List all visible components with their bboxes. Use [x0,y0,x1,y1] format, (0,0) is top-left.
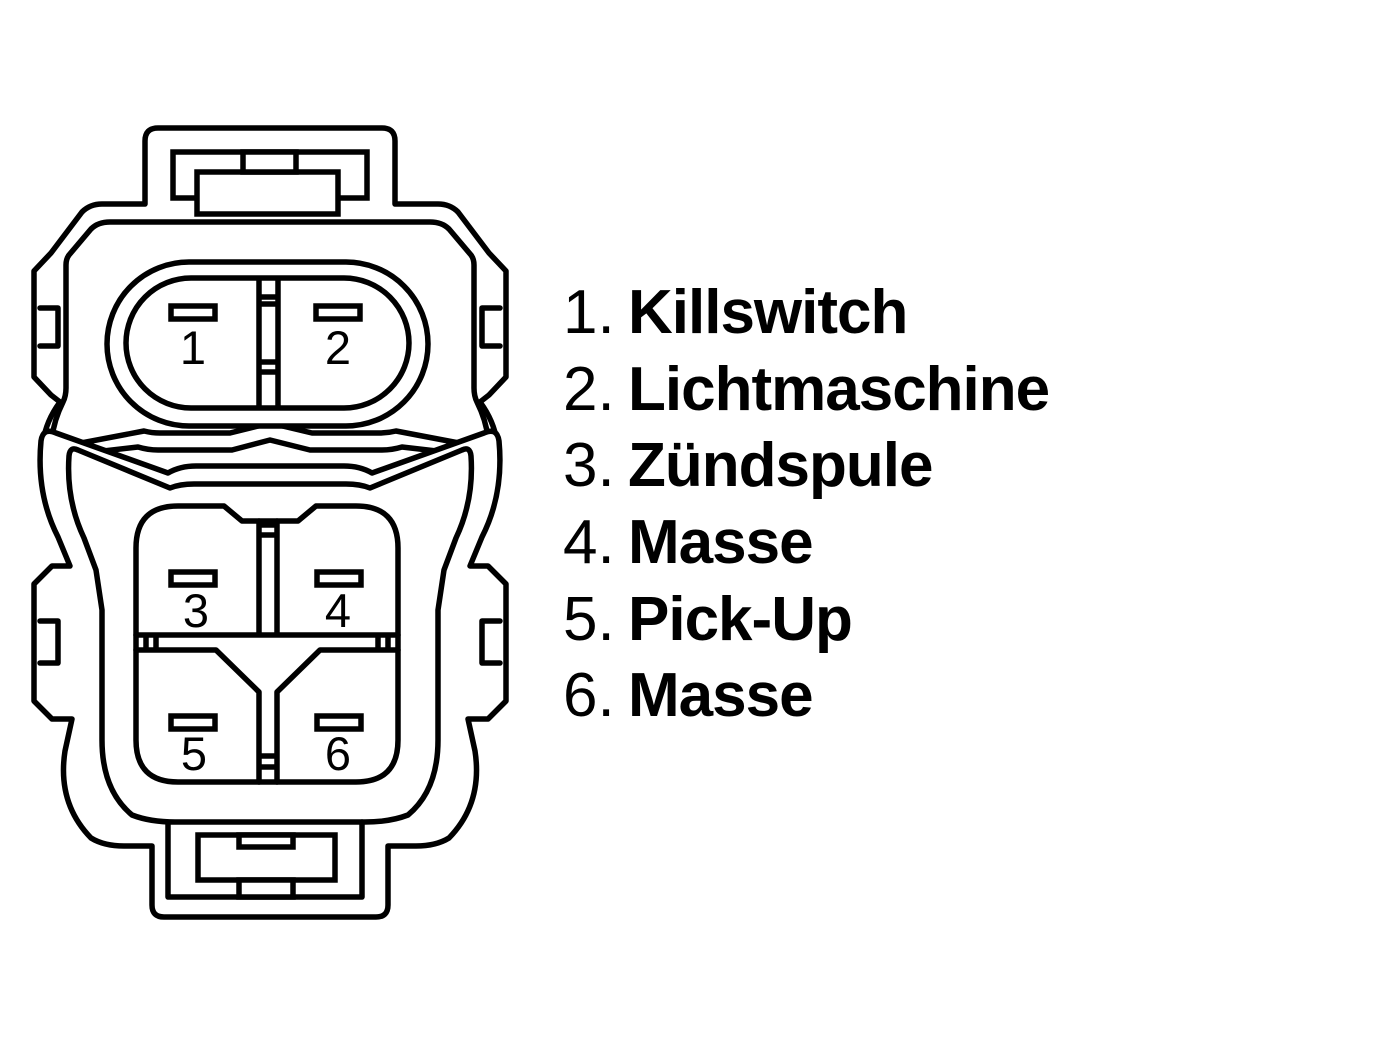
legend-label: Masse [628,661,813,730]
legend-item-2: 2.Lichtmaschine [563,352,1049,428]
pin-2-slot [316,306,360,319]
latch-notch-top [239,835,293,847]
pin-1-number: 1 [180,321,206,374]
pin-6-number: 6 [325,727,351,780]
legend-item-4: 4.Masse [563,505,813,581]
legend-item-1: 1.Killswitch [563,275,907,351]
legend-label: Masse [628,508,813,577]
legend-number: 4. [563,505,628,581]
pin-2-number: 2 [325,321,351,374]
legend-item-6: 6.Masse [563,658,813,734]
top-connector: 1 2 [34,128,506,460]
legend-number: 3. [563,428,628,504]
pin-5-number: 5 [181,727,207,780]
legend-number: 2. [563,352,628,428]
legend-label: Lichtmaschine [628,355,1049,424]
legend-label: Pick-Up [628,585,852,654]
pin-4-number: 4 [325,584,351,637]
latch-notch-bottom [239,880,293,897]
pin-1-slot [171,306,215,319]
legend-label: Zündspule [628,431,932,500]
legend-number: 1. [563,275,628,351]
legend-number: 5. [563,582,628,658]
legend-item-3: 3.Zündspule [563,428,932,504]
legend-item-5: 5.Pick-Up [563,582,852,658]
latch-plate [197,172,338,214]
face-cavity [136,506,398,782]
legend-number: 6. [563,658,628,734]
legend-label: Killswitch [628,278,907,347]
pin-3-number: 3 [183,584,209,637]
page: 1 2 3 [0,0,1400,1050]
bottom-connector: 3 4 5 6 [34,431,506,917]
latch-notch [243,152,296,172]
